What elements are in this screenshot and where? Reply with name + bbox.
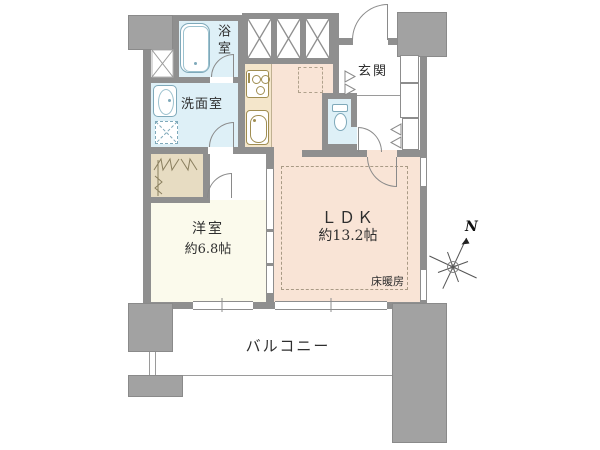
western-room-size-label: 約6.8帖 bbox=[148, 238, 268, 257]
wall bbox=[266, 154, 274, 169]
wall bbox=[333, 62, 339, 97]
toilet-icon bbox=[332, 104, 348, 112]
wall bbox=[339, 38, 353, 45]
shoe-cabinet bbox=[400, 83, 419, 118]
pipe-space-box bbox=[306, 19, 329, 58]
pipe-space-small-x bbox=[152, 50, 173, 77]
door-opening bbox=[208, 147, 233, 154]
wall bbox=[151, 147, 208, 154]
washroom-label: 洗面室 bbox=[181, 93, 223, 112]
pipe-space-box bbox=[277, 19, 300, 58]
refrigerator-space bbox=[298, 67, 323, 93]
balcony-window bbox=[193, 301, 253, 310]
door-opening bbox=[210, 77, 233, 83]
wall bbox=[233, 147, 274, 154]
entrance-door-arc bbox=[352, 4, 388, 40]
north-label: N bbox=[464, 219, 479, 235]
bathtub-icon bbox=[180, 23, 210, 73]
pipe-space-box bbox=[248, 19, 271, 58]
western-room-label: 洋室 bbox=[148, 218, 268, 238]
pillar bbox=[128, 15, 173, 50]
wall bbox=[322, 93, 328, 150]
wall bbox=[233, 77, 245, 83]
wall bbox=[143, 48, 151, 308]
balcony-edge-line bbox=[183, 375, 392, 376]
sliding-door-tick bbox=[266, 263, 274, 266]
wall bbox=[173, 21, 179, 77]
entrance-step-line bbox=[357, 95, 401, 96]
kitchen-sink-icon bbox=[246, 110, 269, 145]
entrance-label: 玄関 bbox=[358, 60, 388, 79]
western-room-door-arc bbox=[207, 173, 232, 198]
toilet-bowl-icon bbox=[334, 113, 347, 131]
washer-space-icon bbox=[155, 121, 178, 144]
wall bbox=[253, 302, 275, 309]
pillar bbox=[128, 375, 183, 397]
bath-label: 浴室 bbox=[213, 24, 232, 68]
toilet-door-arc bbox=[358, 127, 382, 152]
vanity-sink-icon bbox=[153, 85, 177, 117]
side-window bbox=[420, 158, 427, 186]
shoe-cabinet bbox=[400, 55, 419, 83]
balcony-partition bbox=[149, 352, 156, 375]
pillar bbox=[392, 303, 447, 443]
compass-icon: N bbox=[413, 213, 497, 297]
wall bbox=[146, 197, 210, 203]
ldk-size-label: 約13.2帖 bbox=[274, 225, 422, 245]
wall bbox=[351, 93, 357, 127]
floor-heating-label: 床暖房 bbox=[352, 273, 404, 289]
balcony-window bbox=[275, 301, 387, 310]
hall-storage bbox=[402, 118, 419, 150]
pillar bbox=[397, 12, 447, 57]
pillar bbox=[128, 303, 173, 352]
stove-icon bbox=[246, 70, 269, 98]
wall bbox=[168, 15, 245, 21]
wall bbox=[388, 38, 397, 45]
closet-floor bbox=[146, 150, 208, 200]
balcony-label: バルコニー bbox=[183, 335, 393, 356]
floor-plan: N 浴室 洗面室 玄関 ＬＤＫ 約13.2帖 床暖房 洋室 約6.8帖 バルコニ… bbox=[0, 0, 600, 450]
wall bbox=[151, 77, 210, 83]
